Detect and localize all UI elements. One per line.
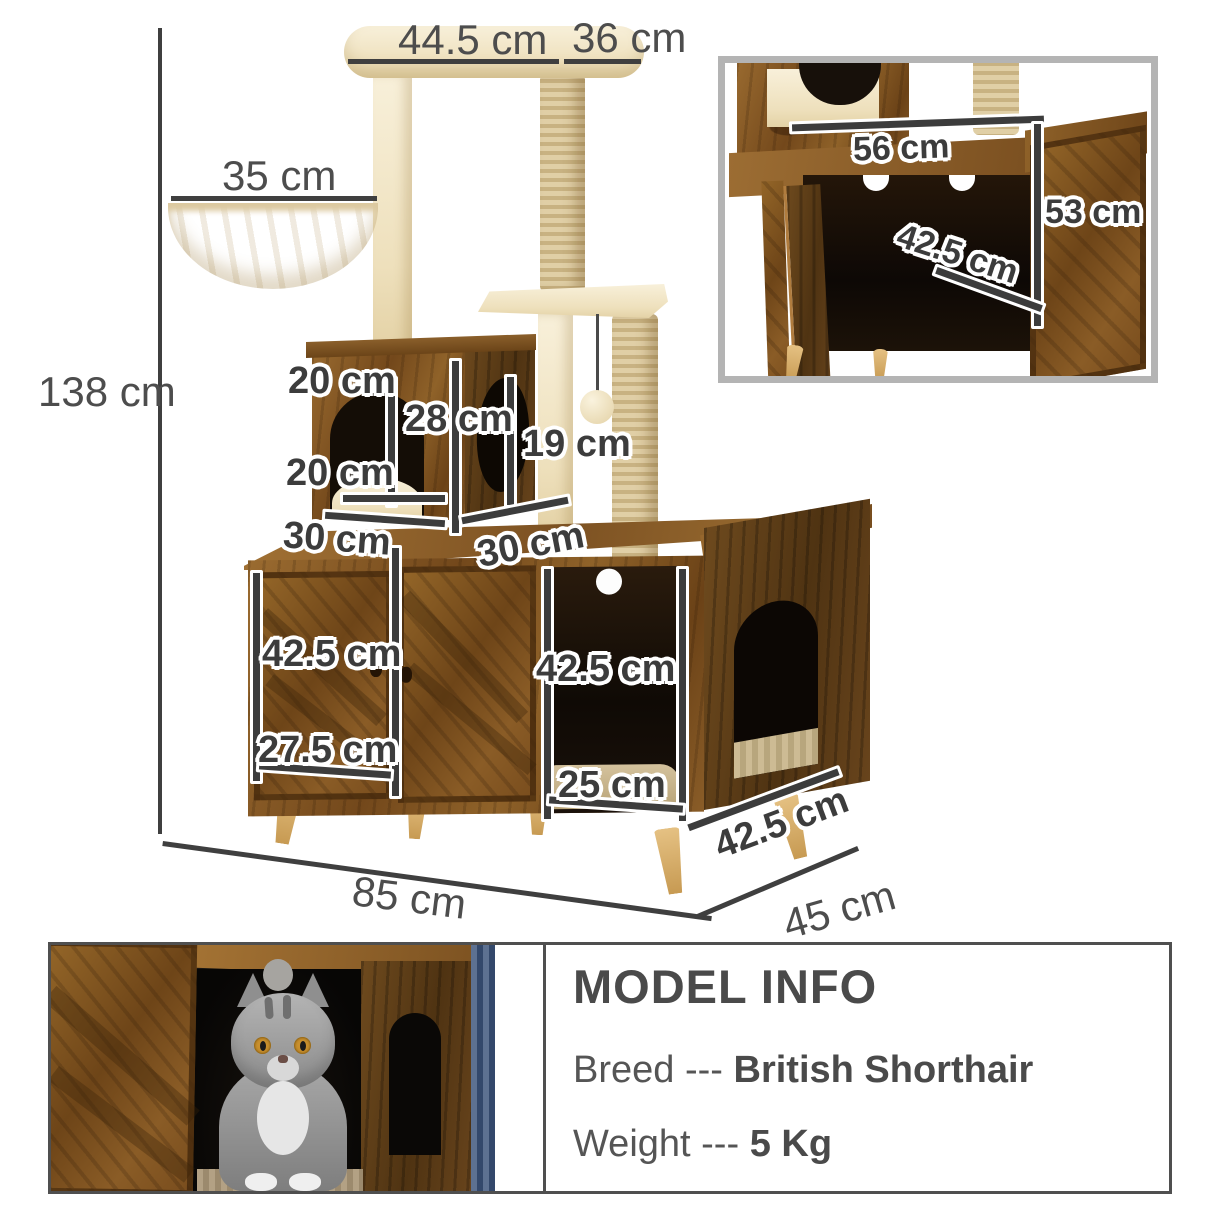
hammock-width-label: 35 cm — [222, 152, 336, 200]
photo-left-door — [51, 945, 197, 1191]
mid-platform — [478, 284, 668, 318]
model-info-title: MODEL INFO — [573, 959, 877, 1014]
hammock — [168, 203, 378, 289]
compartment-back-hole — [596, 568, 622, 594]
base-depth-label: 45 cm — [778, 871, 901, 949]
opening-height-line-left — [541, 566, 554, 822]
sisal-post-top — [540, 74, 585, 292]
inset-height-label: 53 cm — [1045, 193, 1141, 232]
cube-dim-line-28 — [449, 358, 462, 536]
cat-stripe-2 — [283, 995, 291, 1019]
cabinet-leg-4 — [652, 826, 691, 896]
cube-opening-height-label: 20 cm — [288, 360, 396, 403]
breed-row: Breed --- British Shorthair — [573, 1049, 1033, 1092]
weight-value: 5 Kg — [750, 1123, 832, 1165]
photo-arch-opening — [389, 1013, 441, 1155]
breed-label: Breed — [573, 1049, 674, 1091]
breed-separator: --- — [685, 1049, 723, 1091]
side-arch-opening — [734, 594, 818, 779]
post-height-label: 19 cm — [523, 423, 631, 466]
cat-stripe-1 — [264, 997, 274, 1020]
product-infographic: 138 cm 44.5 cm 36 cm 35 cm 20 c — [0, 0, 1214, 1214]
cat-nose — [278, 1055, 288, 1063]
opening-height-label: 42.5 cm — [536, 648, 675, 691]
cabinet-side-face — [704, 499, 870, 810]
plush-post-left — [373, 74, 412, 348]
weight-label: Weight — [573, 1123, 691, 1165]
height-label: 138 cm — [38, 368, 176, 416]
cat-pupil-right — [300, 1041, 306, 1051]
perch-length-label: 44.5 cm — [398, 16, 547, 64]
inset-right-door — [1030, 125, 1146, 383]
perch-depth-label: 36 cm — [572, 14, 686, 62]
interior-inset: 56 cm 53 cm 42.5 cm — [718, 56, 1158, 383]
cat-chest — [257, 1081, 309, 1155]
opening-width-label: 25 cm — [558, 764, 666, 807]
base-width-label: 85 cm — [350, 867, 469, 929]
opening-height-line-right — [676, 566, 689, 824]
toy-ball — [580, 390, 614, 424]
cat-paw-right — [289, 1173, 321, 1191]
door-height-label: 42.5 cm — [262, 633, 401, 676]
weight-row: Weight --- 5 Kg — [573, 1123, 832, 1166]
side-arch-scratcher — [734, 728, 818, 779]
panel-divider — [543, 945, 546, 1191]
cat-photo — [51, 945, 495, 1191]
photo-right-panel — [361, 961, 473, 1191]
breed-value: British Shorthair — [734, 1049, 1034, 1091]
cube-inner-height-label: 28 cm — [405, 398, 513, 441]
photo-curtain — [471, 945, 495, 1191]
bottom-section: MODEL INFO Breed --- British Shorthair W… — [48, 942, 1172, 1194]
cube-opening-width-label: 20 cm — [286, 452, 394, 495]
cube-width-label: 30 cm — [282, 514, 392, 564]
toy-string — [596, 314, 599, 394]
cat-paw-left — [245, 1173, 277, 1191]
height-dimension-line — [158, 28, 162, 834]
cabinet-middle-door — [398, 565, 536, 802]
inset-width-label: 56 cm — [852, 127, 950, 169]
weight-separator: --- — [701, 1123, 739, 1165]
door-width-label: 27.5 cm — [258, 729, 397, 772]
inset-leg-2 — [870, 349, 889, 382]
cat-pupil-left — [260, 1041, 266, 1051]
cube-dim-line-19 — [504, 374, 517, 508]
